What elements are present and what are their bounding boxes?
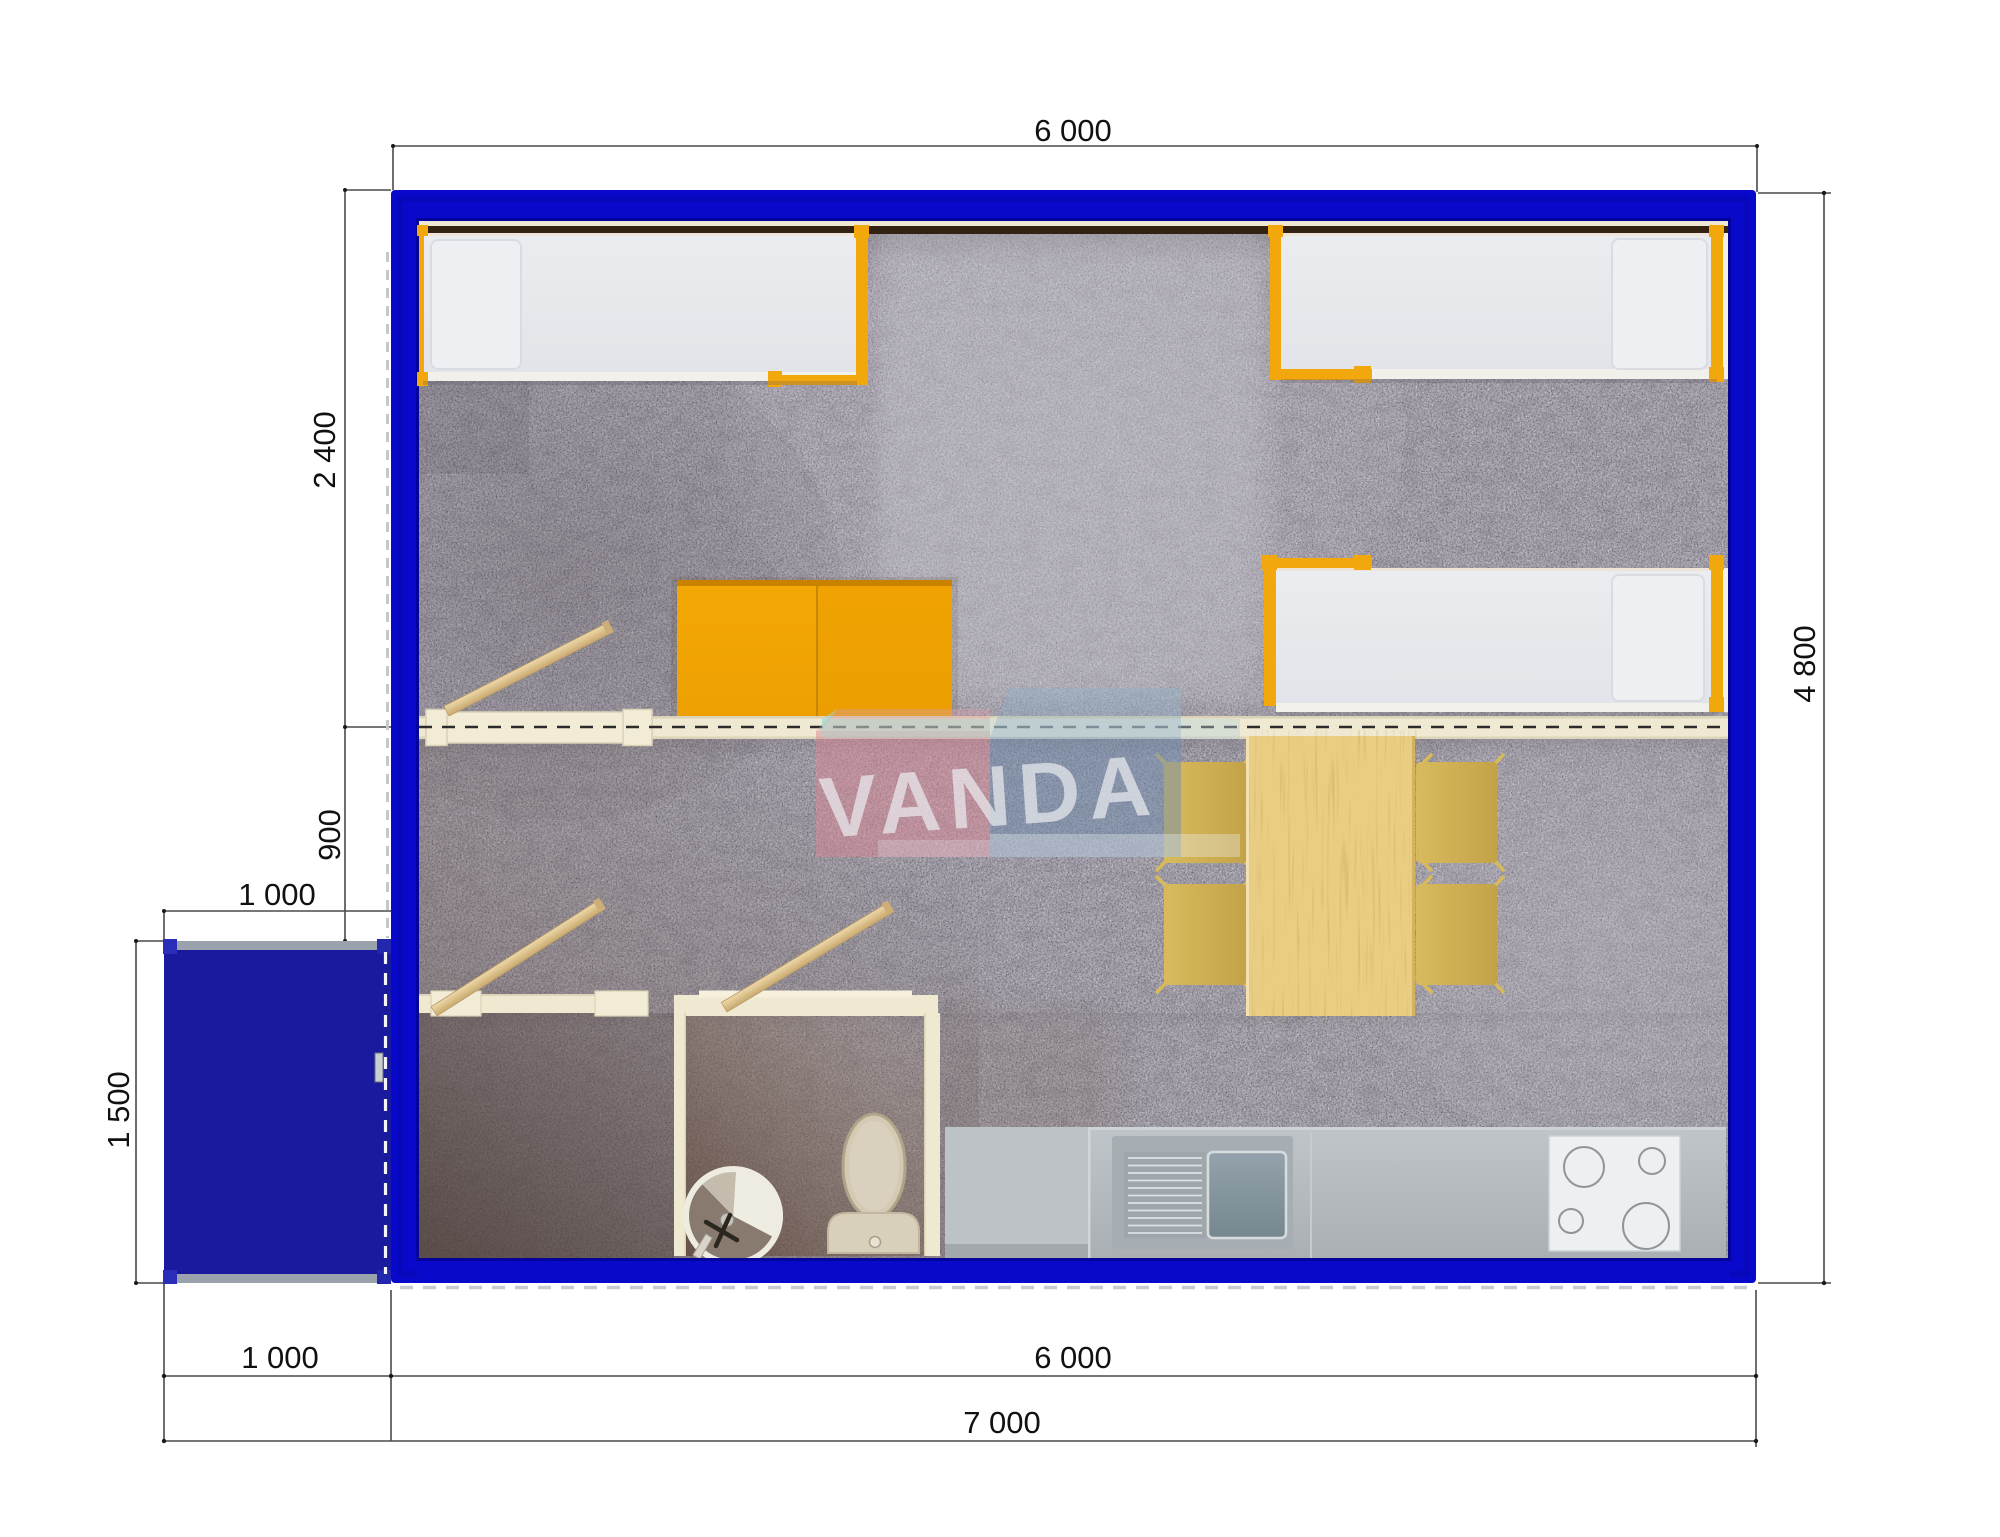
svg-text:4 800: 4 800 <box>1787 625 1822 703</box>
svg-text:1 000: 1 000 <box>241 1340 319 1375</box>
svg-text:6 000: 6 000 <box>1034 113 1112 148</box>
svg-text:2 400: 2 400 <box>307 411 342 489</box>
svg-text:6 000: 6 000 <box>1034 1340 1112 1375</box>
svg-text:7 000: 7 000 <box>963 1405 1041 1440</box>
svg-text:1 500: 1 500 <box>101 1071 136 1149</box>
svg-text:1 000: 1 000 <box>238 877 316 912</box>
svg-text:900: 900 <box>312 809 347 861</box>
